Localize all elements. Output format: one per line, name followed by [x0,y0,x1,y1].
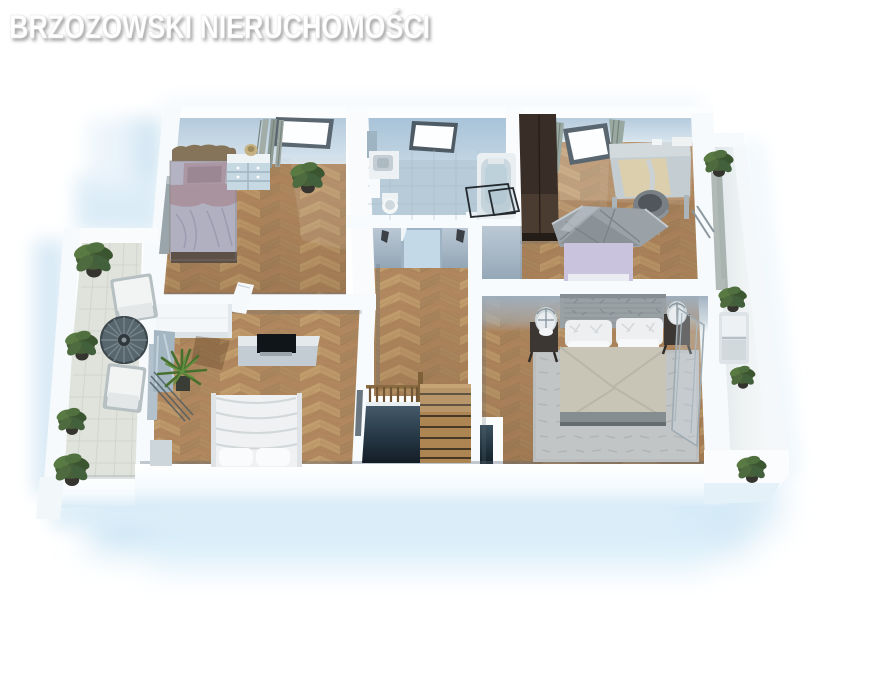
svg-text:BRZOZOWSKI NIERUCHOMOŚCI: BRZOZOWSKI NIERUCHOMOŚCI [9,8,430,45]
